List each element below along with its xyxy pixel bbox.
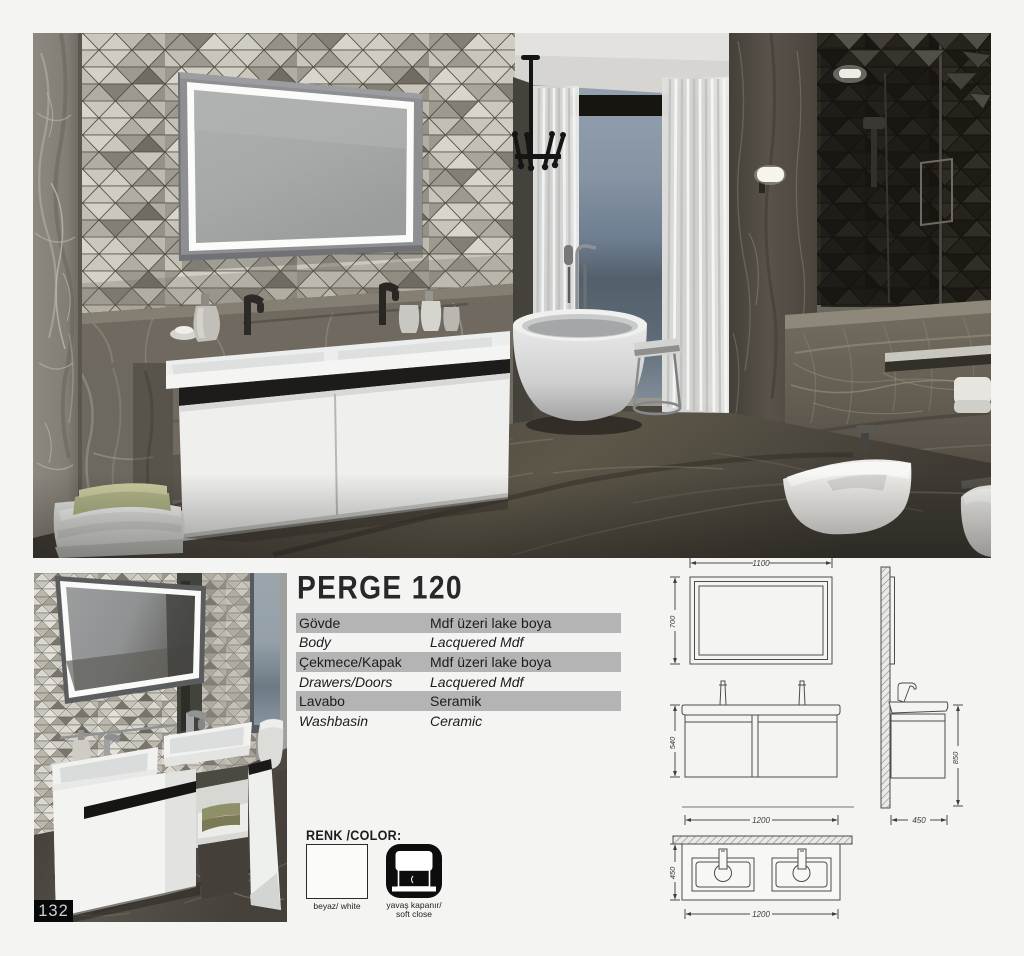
svg-text:1200: 1200 — [752, 910, 770, 919]
svg-text:450: 450 — [668, 866, 677, 879]
svg-text:450: 450 — [912, 816, 926, 825]
svg-text:700: 700 — [668, 615, 677, 628]
svg-text:1100: 1100 — [752, 559, 770, 568]
svg-text:1200: 1200 — [752, 816, 770, 825]
svg-text:850: 850 — [951, 751, 960, 764]
svg-text:540: 540 — [668, 736, 677, 749]
